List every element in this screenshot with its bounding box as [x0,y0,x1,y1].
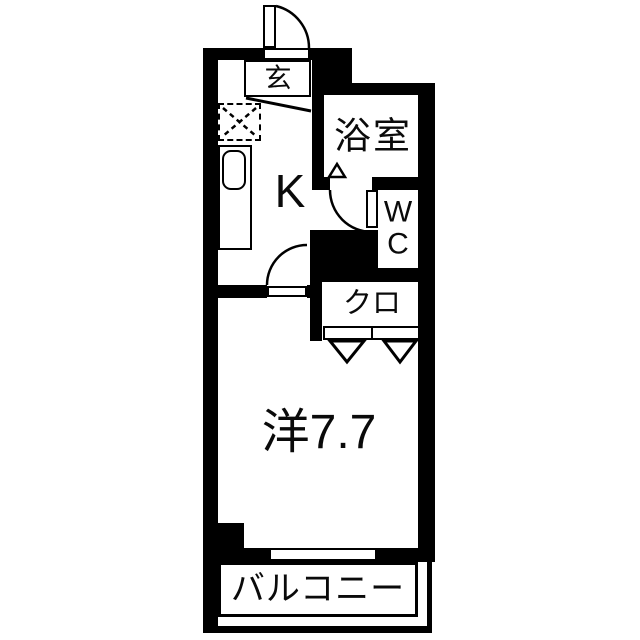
room-label-western-room: 洋7.7 [262,409,377,457]
closet-folding-door-marker-right [384,341,416,362]
entrance-door-arc [276,6,309,48]
room-label-genkan: 玄 [265,66,292,93]
closet-folding-door-marker-left [330,341,364,362]
room-label-closet: クロ [343,290,401,319]
room-label-toilet: WC [381,197,415,260]
bath-step-marker [329,164,345,177]
room-label-kitchen: K [275,168,306,214]
bath-door-arc [330,190,372,232]
floorplan: 玄 K 浴室 WC クロ 洋7.7 バルコニー [0,0,640,640]
room-label-bathroom: 浴室 [334,118,412,155]
room-door-arc [267,245,307,285]
door-swing-overlay [0,0,640,640]
room-label-balcony: バルコニー [231,572,405,606]
